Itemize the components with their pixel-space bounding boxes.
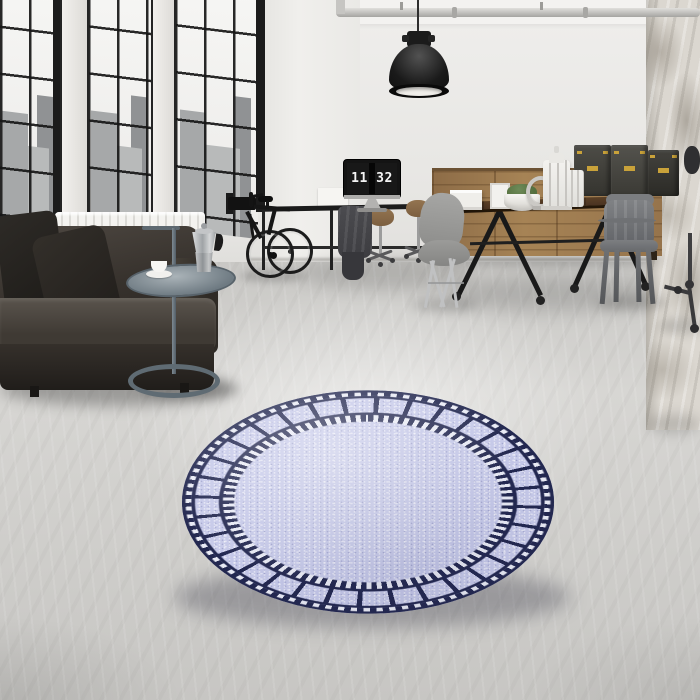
pendant-lamp-lug [428,35,435,42]
pipe-joint [583,7,588,18]
white-lantern-small [567,170,584,207]
wall-fixture [684,146,700,174]
chair-caster [390,258,395,263]
monitor-base [357,208,387,212]
storage-trunk [611,145,648,196]
lantern-finial [554,146,559,153]
molded-chair-seat [418,240,470,266]
pipe-joint [452,7,457,18]
pipe-elbow [336,0,345,14]
round-rug [182,390,554,613]
floor-shadow [648,414,700,434]
draped-cloth-tail [342,252,364,280]
floor-shadow [412,298,478,312]
pipe-strap [540,2,543,10]
ceiling-pipe [336,8,700,17]
pipe-strap [400,2,403,10]
stool-pole [688,233,692,283]
molded-chair-brace [428,282,464,284]
metal-armchair-leg [614,250,619,302]
rug-lighting [182,390,554,613]
flip-clock-time: 11 32 [351,171,393,186]
table-caster [536,296,545,305]
office-chair-pole [379,226,382,254]
table-caster [570,284,579,293]
sofa-seat-cushion [0,298,216,350]
window-bay [0,0,57,237]
sofa-leg [30,386,39,397]
window-frame-jamb [256,0,265,212]
pendant-lamp-lug [402,35,409,42]
desk-leg [330,210,333,270]
window-bay [88,0,152,238]
monitor-screen: 11 32 [347,163,397,194]
wall-pier [151,0,176,246]
chair-caster [378,262,383,267]
loft-room-photo: 11 32 [0,0,700,700]
monitor-chin [344,195,400,199]
metal-armchair-leg [636,250,641,302]
floor-shadow [596,296,668,310]
pendant-lamp-diffuser [396,87,442,96]
pendant-lamp-cord [417,0,419,33]
lantern-dome [549,152,564,163]
bike-seatpost [266,201,269,209]
bike-handlebar-drop [249,192,253,207]
chair-caster [366,258,371,263]
moka-pot-knob [201,223,207,229]
metal-armchair-arm [598,218,656,223]
white-lantern [543,160,570,208]
wall-pier [60,0,89,246]
chair-caster [404,254,409,259]
stool-caster [674,286,682,294]
storage-trunk [648,150,679,196]
lantern-base [541,206,572,210]
stool-caster [690,324,699,333]
side-table-rod [172,228,176,374]
bike-crank [270,252,277,259]
draped-cloth [338,206,372,258]
